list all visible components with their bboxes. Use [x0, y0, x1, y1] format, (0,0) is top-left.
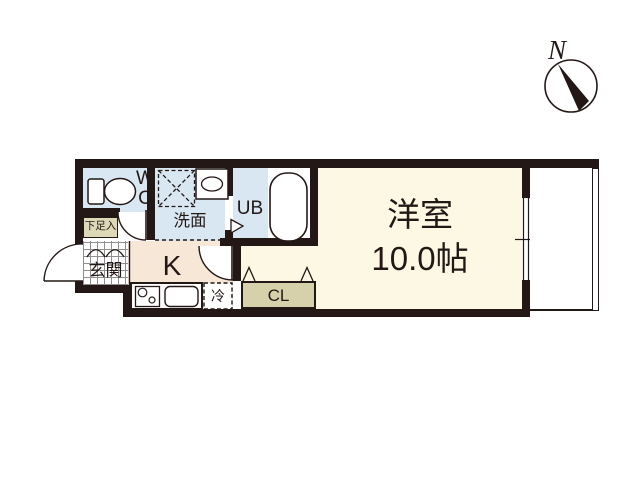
- washing-machine-pan-icon: [159, 171, 195, 207]
- symbols-layer: N: [0, 0, 640, 480]
- vanity-sink-icon: [196, 169, 228, 199]
- bathtub-icon: [270, 173, 307, 241]
- closet-label: CL: [241, 286, 316, 305]
- toilet-icon: [88, 179, 136, 205]
- compass-north-label: N: [547, 35, 568, 65]
- shoe-storage-label: 下足入: [83, 221, 118, 233]
- main-room-size-label: 10.0帖: [320, 241, 520, 278]
- bath-label: UB: [233, 198, 267, 219]
- compass: N: [545, 35, 597, 112]
- kitchen-counter-icon: [131, 283, 202, 309]
- entrance-label: 玄関: [83, 261, 128, 280]
- wc-door-icon: [118, 210, 146, 240]
- refrigerator-label: 冷: [204, 289, 232, 305]
- kitchen-label: K: [149, 250, 195, 281]
- wc-label: W C: [131, 169, 159, 209]
- washroom-label: 洗面: [157, 212, 223, 230]
- main-room-name-label: 洋室: [320, 197, 520, 234]
- kitchen-door-icon: [199, 246, 233, 280]
- floor-plan: N: [0, 0, 640, 480]
- entrance-door-icon: [44, 244, 83, 281]
- bath-door-icon: [231, 220, 243, 234]
- shoe-cabinet-doors-icon: [87, 250, 124, 257]
- closet-doors-icon: [243, 268, 313, 282]
